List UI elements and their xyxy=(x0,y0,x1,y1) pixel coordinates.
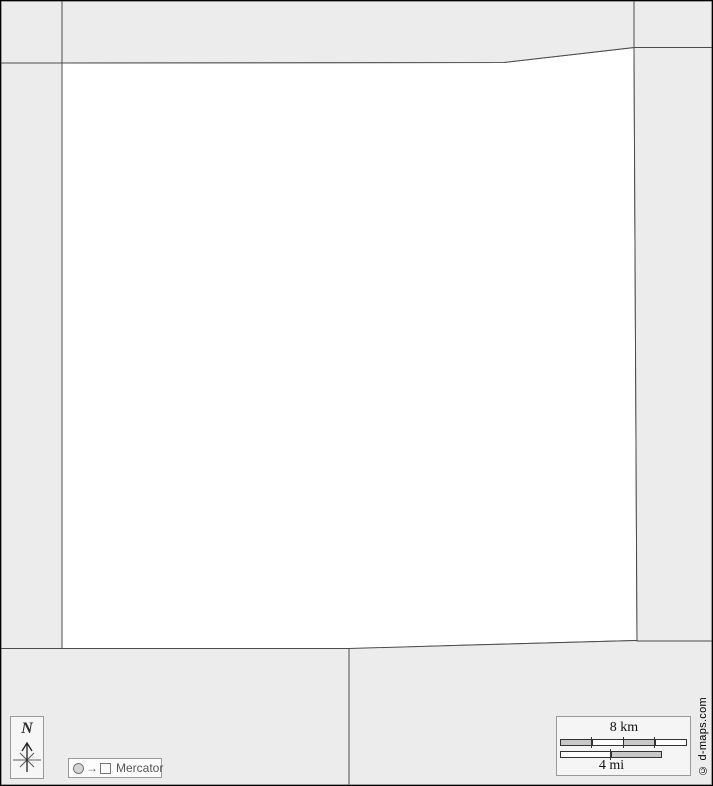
projection-label: Mercator xyxy=(116,761,163,775)
scale-tick xyxy=(623,737,624,748)
scale-segment xyxy=(655,740,687,745)
scale-tick xyxy=(654,737,655,748)
region-top xyxy=(62,1,634,63)
region-top-right xyxy=(634,1,712,48)
projected-square-icon xyxy=(100,763,111,774)
region-left xyxy=(1,63,62,649)
scale-box: 8 km 4 mi xyxy=(556,716,691,776)
map-page: N → Mercator 8 km xyxy=(0,0,713,786)
scale-segment xyxy=(611,752,662,757)
scale-segment xyxy=(623,740,655,745)
scale-mi-label: 4 mi xyxy=(561,758,662,774)
scale-km-label: 8 km xyxy=(561,720,687,736)
scale-segment xyxy=(561,752,611,757)
compass-north-label: N xyxy=(11,721,43,737)
globe-circle-icon xyxy=(73,763,84,774)
map-canvas xyxy=(1,1,712,785)
projection-arrow-icon: → xyxy=(86,762,98,774)
scale-bar-mi xyxy=(560,751,662,758)
region-focus xyxy=(62,48,637,649)
compass-box: N xyxy=(10,716,44,779)
scale-tick xyxy=(591,737,592,748)
copyright-label: © d-maps.com xyxy=(697,697,709,776)
north-arrow-icon xyxy=(11,739,43,777)
region-bottom-left xyxy=(1,649,349,786)
scale-segment xyxy=(592,740,624,745)
scale-segment xyxy=(561,740,592,745)
region-right xyxy=(634,48,712,642)
region-top-left xyxy=(1,1,62,63)
projection-legend: → Mercator xyxy=(68,758,162,778)
